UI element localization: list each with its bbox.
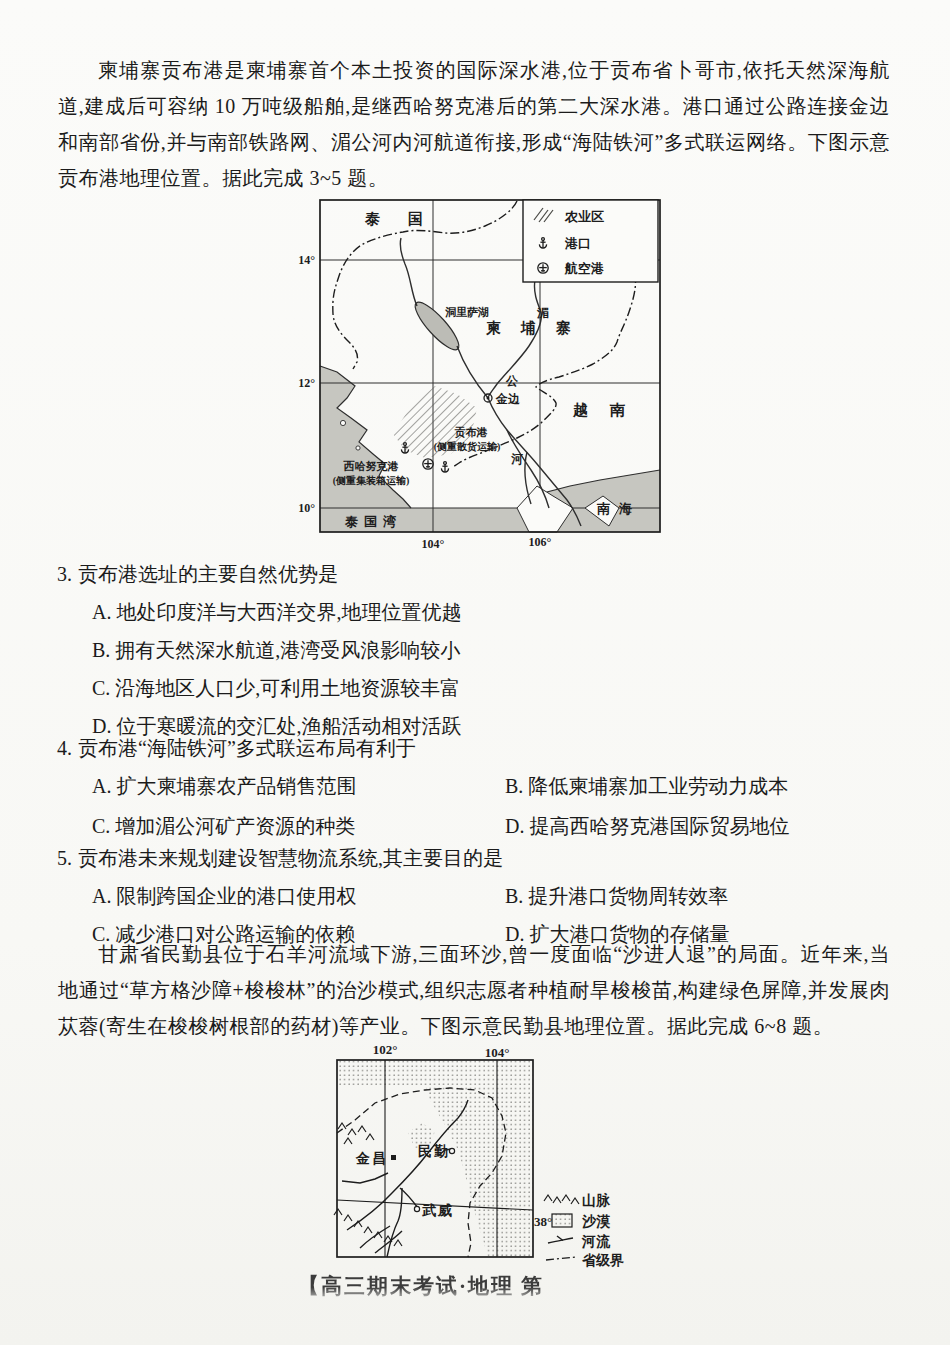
lat-10-label: 10°	[298, 501, 315, 515]
south-china-sea-label: 南海	[596, 501, 641, 516]
legend-river-label: 河流	[581, 1233, 611, 1249]
q4-stem: 4.贡布港“海陆铁河”多式联运布局有利于	[57, 735, 416, 762]
q5-option-a: A. 限制跨国企业的港口使用权	[92, 883, 356, 910]
q3-stem: 3.贡布港选址的主要自然优势是	[57, 561, 338, 588]
q4-number: 4.	[57, 737, 72, 759]
legend-mountain-label: 山脉	[582, 1192, 611, 1208]
q3-number: 3.	[57, 563, 72, 585]
phnom-penh-label: 金边	[495, 392, 520, 406]
jinchang-label: 金昌	[355, 1151, 388, 1166]
lon-104-label: 104°	[485, 1045, 510, 1060]
cambodia-map: 泰国 柬埔寨 越南 洞里萨湖 湄 公 河 金边 贡布港 (侧重散货运输) 西哈努…	[285, 196, 675, 556]
lon-106-label: 106°	[529, 535, 552, 549]
minqin-map: 金昌 民勤 武威 102° 104° 38° 山脉 沙漠 河流 省级界	[330, 1038, 710, 1283]
passage-kampot-port: 柬埔寨贡布港是柬埔寨首个本土投资的国际深水港,位于贡布省卜哥市,依托天然深海航道…	[58, 52, 890, 196]
tonle-sap-label: 洞里萨湖	[445, 306, 489, 318]
kampot-port-label: 贡布港	[455, 426, 488, 439]
mekong-label-2: 公	[505, 374, 519, 388]
wuwei-marker	[414, 1206, 419, 1211]
cambodia-label: 柬埔寨	[485, 319, 591, 336]
mountain-symbols	[334, 1123, 402, 1246]
airport-icon	[423, 459, 433, 469]
legend-desert-label: 沙漠	[582, 1214, 611, 1229]
lat-38-label: 38°	[534, 1214, 552, 1229]
map2-legend: 山脉 沙漠 河流 省级界	[544, 1192, 624, 1268]
minqin-label: 民勤	[418, 1143, 450, 1159]
minqin-marker	[449, 1148, 454, 1153]
legend-port-label: 港口	[564, 236, 591, 251]
q5-option-b: B. 提升港口货物周转效率	[505, 883, 728, 910]
q5-stem: 5.贡布港未来规划建设智慧物流系统,其主要目的是	[57, 845, 503, 872]
sihanoukville-note: (侧重集装箱运输)	[333, 475, 410, 487]
legend-agri-label: 农业区	[564, 209, 604, 224]
gulf-of-thailand-label: 泰国湾	[344, 514, 402, 529]
lon-104-label: 104°	[422, 537, 445, 551]
phnom-penh-marker	[484, 394, 492, 402]
lat-14-label: 14°	[298, 253, 315, 267]
exam-page: 柬埔寨贡布港是柬埔寨首个本土投资的国际深水港,位于贡布省卜哥市,依托天然深海航道…	[0, 0, 950, 1345]
q3-option-b: B. 拥有天然深水航道,港湾受风浪影响较小	[92, 637, 460, 664]
thailand-label: 泰国	[364, 211, 451, 227]
mountain-legend-icon	[544, 1195, 579, 1204]
mekong-label-3: 河	[511, 452, 523, 466]
lon-102-label: 102°	[373, 1042, 398, 1057]
anchor-icon	[441, 462, 448, 472]
river-legend-icon	[548, 1236, 573, 1243]
airport-icon	[538, 263, 548, 273]
legend-boundary-label: 省级界	[582, 1253, 624, 1268]
desert-legend-icon	[552, 1214, 572, 1227]
q4-option-c: C. 增加湄公河矿产资源的种类	[92, 813, 355, 840]
wuwei-label: 武威	[421, 1203, 454, 1218]
passage-minqin: 甘肃省民勤县位于石羊河流域下游,三面环沙,曾一度面临“沙进人退”的局面。近年来,…	[58, 936, 890, 1044]
vietnam-label: 越南	[572, 402, 647, 418]
mekong-label-1: 湄	[536, 306, 549, 320]
q4-option-d: D. 提高西哈努克港国际贸易地位	[505, 813, 789, 840]
jinchang-marker	[391, 1155, 396, 1160]
q5-number: 5.	[57, 847, 72, 869]
page-footer: 【高三期末考试·地理 第	[298, 1272, 544, 1300]
q3-option-a: A. 地处印度洋与大西洋交界,地理位置优越	[92, 599, 461, 626]
boundary-legend-icon	[546, 1257, 576, 1260]
lat-12-label: 12°	[298, 376, 315, 390]
kampot-port-note: (侧重散货运输)	[434, 441, 501, 453]
sihanoukville-label: 西哈努克港	[343, 460, 399, 472]
q4-option-b: B. 降低柬埔寨加工业劳动力成本	[505, 773, 788, 800]
q4-option-a: A. 扩大柬埔寨农产品销售范围	[92, 773, 356, 800]
map1-legend: 农业区 港口 航空港	[523, 200, 658, 282]
legend-airport-label: 航空港	[564, 261, 604, 276]
q3-option-c: C. 沿海地区人口少,可利用土地资源较丰富	[92, 675, 460, 702]
